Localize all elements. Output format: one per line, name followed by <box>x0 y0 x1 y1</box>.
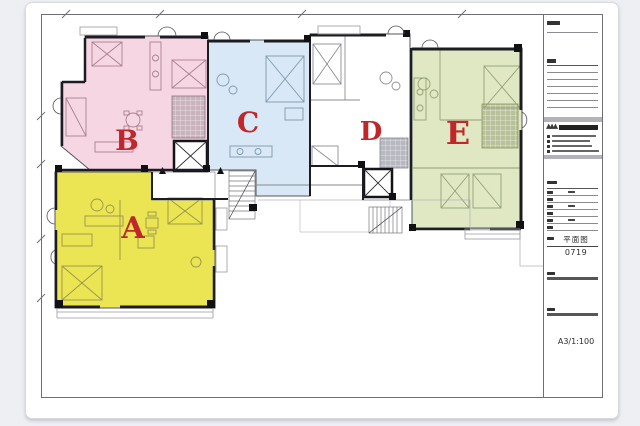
divider <box>547 107 598 108</box>
contact-line <box>547 135 550 138</box>
contact-line <box>552 145 592 147</box>
illegible-label <box>547 191 553 194</box>
contact-line <box>552 140 590 142</box>
illegible-label <box>547 181 557 184</box>
illegible-label <box>547 226 553 229</box>
illegible-label <box>547 205 553 208</box>
illegible-label <box>547 219 553 222</box>
contact-line <box>547 145 550 148</box>
divider <box>547 32 598 33</box>
divider <box>547 277 598 280</box>
contact-line <box>547 150 550 153</box>
divider <box>547 100 598 101</box>
unit-d-label: D <box>360 117 383 147</box>
divider <box>547 79 598 80</box>
divider <box>547 202 598 203</box>
divider <box>547 246 598 247</box>
drawing-title-label <box>547 237 554 240</box>
divider-band <box>544 155 602 159</box>
divider <box>547 195 598 196</box>
divider <box>547 72 598 73</box>
divider <box>547 223 598 224</box>
illegible-value <box>568 219 575 221</box>
divider <box>547 313 598 316</box>
divider <box>547 188 598 189</box>
unit-b-label: B <box>115 124 139 157</box>
illegible-value <box>568 191 575 193</box>
illegible-value <box>568 205 575 207</box>
divider <box>547 86 598 87</box>
title-block: ▲▲▲ 平面图 0719 A3/1:1 <box>543 14 603 398</box>
divider <box>547 65 598 66</box>
contact-line <box>552 135 596 137</box>
contact-line <box>547 140 550 143</box>
staircase <box>229 171 255 219</box>
illegible-label <box>547 21 560 25</box>
unit-a-label: A <box>120 211 145 246</box>
drawing-title: 平面图 <box>554 234 598 245</box>
unit-e-label: E <box>446 114 470 152</box>
company-name-text <box>559 125 598 130</box>
divider <box>547 230 598 231</box>
company-logo-icon: ▲▲▲ <box>546 123 556 130</box>
divider <box>547 209 598 210</box>
drawing-number: 0719 <box>554 248 598 257</box>
contact-line <box>552 150 599 152</box>
illegible-label <box>547 212 553 215</box>
elevator-shaft <box>364 169 392 197</box>
illegible-label <box>547 272 555 275</box>
divider <box>547 216 598 217</box>
elevator-shaft <box>174 141 207 171</box>
sheet-scale: A3/1:100 <box>554 337 598 346</box>
staircase <box>369 207 402 233</box>
illegible-label <box>547 308 555 311</box>
illegible-label <box>547 59 556 63</box>
illegible-label <box>547 198 553 201</box>
divider <box>547 93 598 94</box>
unit-c-label: C <box>237 106 259 139</box>
screenshot-root: A B C D E ▲▲▲ <box>0 0 640 426</box>
